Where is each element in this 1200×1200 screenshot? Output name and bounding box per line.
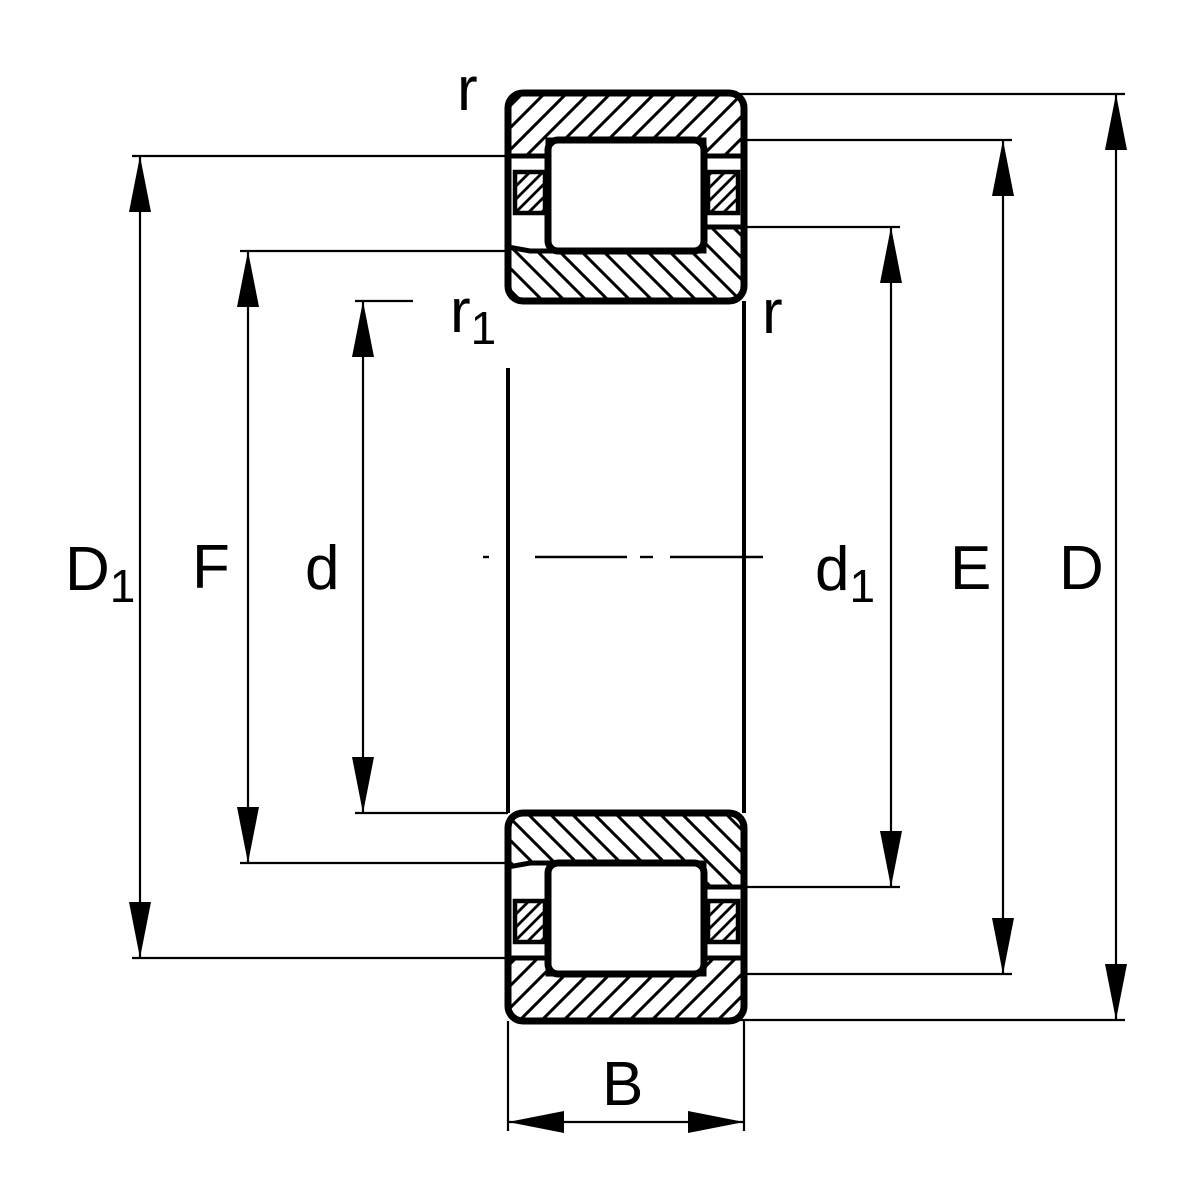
dimension-d: d <box>305 301 508 813</box>
dim-label-D: D <box>1059 534 1104 603</box>
bearing-diagram: D1 F d d1 E <box>0 0 1200 1200</box>
label-r-right: r <box>762 278 783 347</box>
dim-label-F: F <box>192 533 230 602</box>
arrowhead-up <box>352 301 374 357</box>
arrowhead-down <box>1105 964 1127 1020</box>
top-section <box>508 93 744 301</box>
dim-label-d: d <box>305 534 339 603</box>
dimension-D: D <box>738 94 1127 1020</box>
dim-label-E: E <box>950 534 991 603</box>
roller-bottom <box>548 863 704 974</box>
dimension-B: B <box>508 1021 744 1133</box>
arrowhead-up <box>992 140 1014 196</box>
label-r-top: r <box>457 55 478 124</box>
cage-bottom-right <box>708 901 738 942</box>
drawing-canvas: D1 F d d1 E <box>0 0 1200 1200</box>
cage-bottom-left <box>515 901 545 942</box>
dimension-E: E <box>744 140 1014 974</box>
arrowhead-left <box>508 1111 564 1133</box>
dim-label-d1: d1 <box>815 535 875 612</box>
arrowhead-up <box>880 227 902 283</box>
arrowhead-up <box>129 156 151 212</box>
dimension-D1: D1 <box>65 156 508 958</box>
arrowhead-down <box>352 757 374 813</box>
arrowhead-down <box>992 918 1014 974</box>
arrowhead-up <box>1105 94 1127 150</box>
roller-top <box>548 140 704 251</box>
label-r1: r1 <box>450 277 496 354</box>
dim-label-D1: D1 <box>65 535 135 612</box>
arrowhead-down <box>129 902 151 958</box>
arrowhead-down <box>237 807 259 863</box>
arrowhead-right <box>688 1111 744 1133</box>
cage-top-right <box>708 172 738 213</box>
arrowhead-up <box>237 251 259 307</box>
bottom-section <box>508 813 744 1021</box>
arrowhead-down <box>880 831 902 887</box>
dim-label-B: B <box>602 1050 643 1119</box>
cage-top-left <box>515 172 545 213</box>
